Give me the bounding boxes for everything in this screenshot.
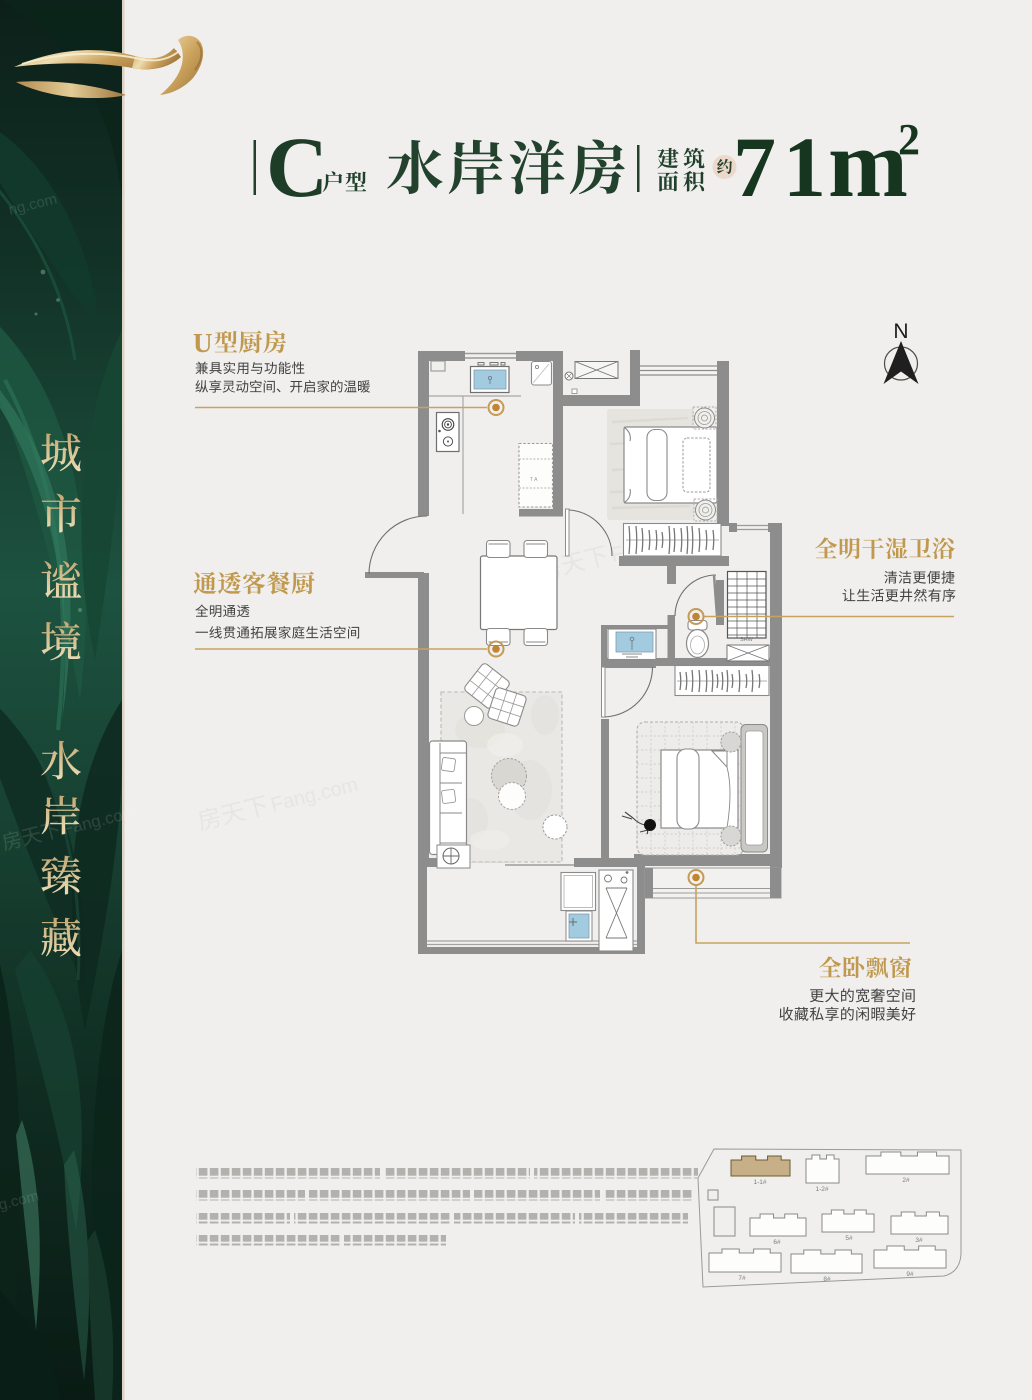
svg-text:T A: T A bbox=[530, 477, 538, 483]
svg-text:N: N bbox=[893, 320, 908, 343]
svg-text:U: U bbox=[193, 328, 213, 358]
svg-text:1-2#: 1-2# bbox=[815, 1186, 828, 1193]
svg-text:1-1#: 1-1# bbox=[753, 1179, 766, 1186]
svg-text:71: 71 bbox=[733, 119, 833, 215]
svg-text:m: m bbox=[828, 110, 908, 217]
svg-text:SHW: SHW bbox=[740, 637, 754, 643]
svg-text:9#: 9# bbox=[906, 1271, 914, 1278]
svg-text:2#: 2# bbox=[902, 1177, 910, 1184]
svg-text:C: C bbox=[266, 119, 328, 215]
svg-text:3#: 3# bbox=[915, 1237, 923, 1244]
svg-text:2: 2 bbox=[898, 115, 920, 164]
svg-text:6#: 6# bbox=[773, 1239, 781, 1246]
svg-text:8#: 8# bbox=[823, 1276, 831, 1283]
svg-text:5#: 5# bbox=[845, 1235, 853, 1242]
svg-text:7#: 7# bbox=[738, 1275, 746, 1282]
